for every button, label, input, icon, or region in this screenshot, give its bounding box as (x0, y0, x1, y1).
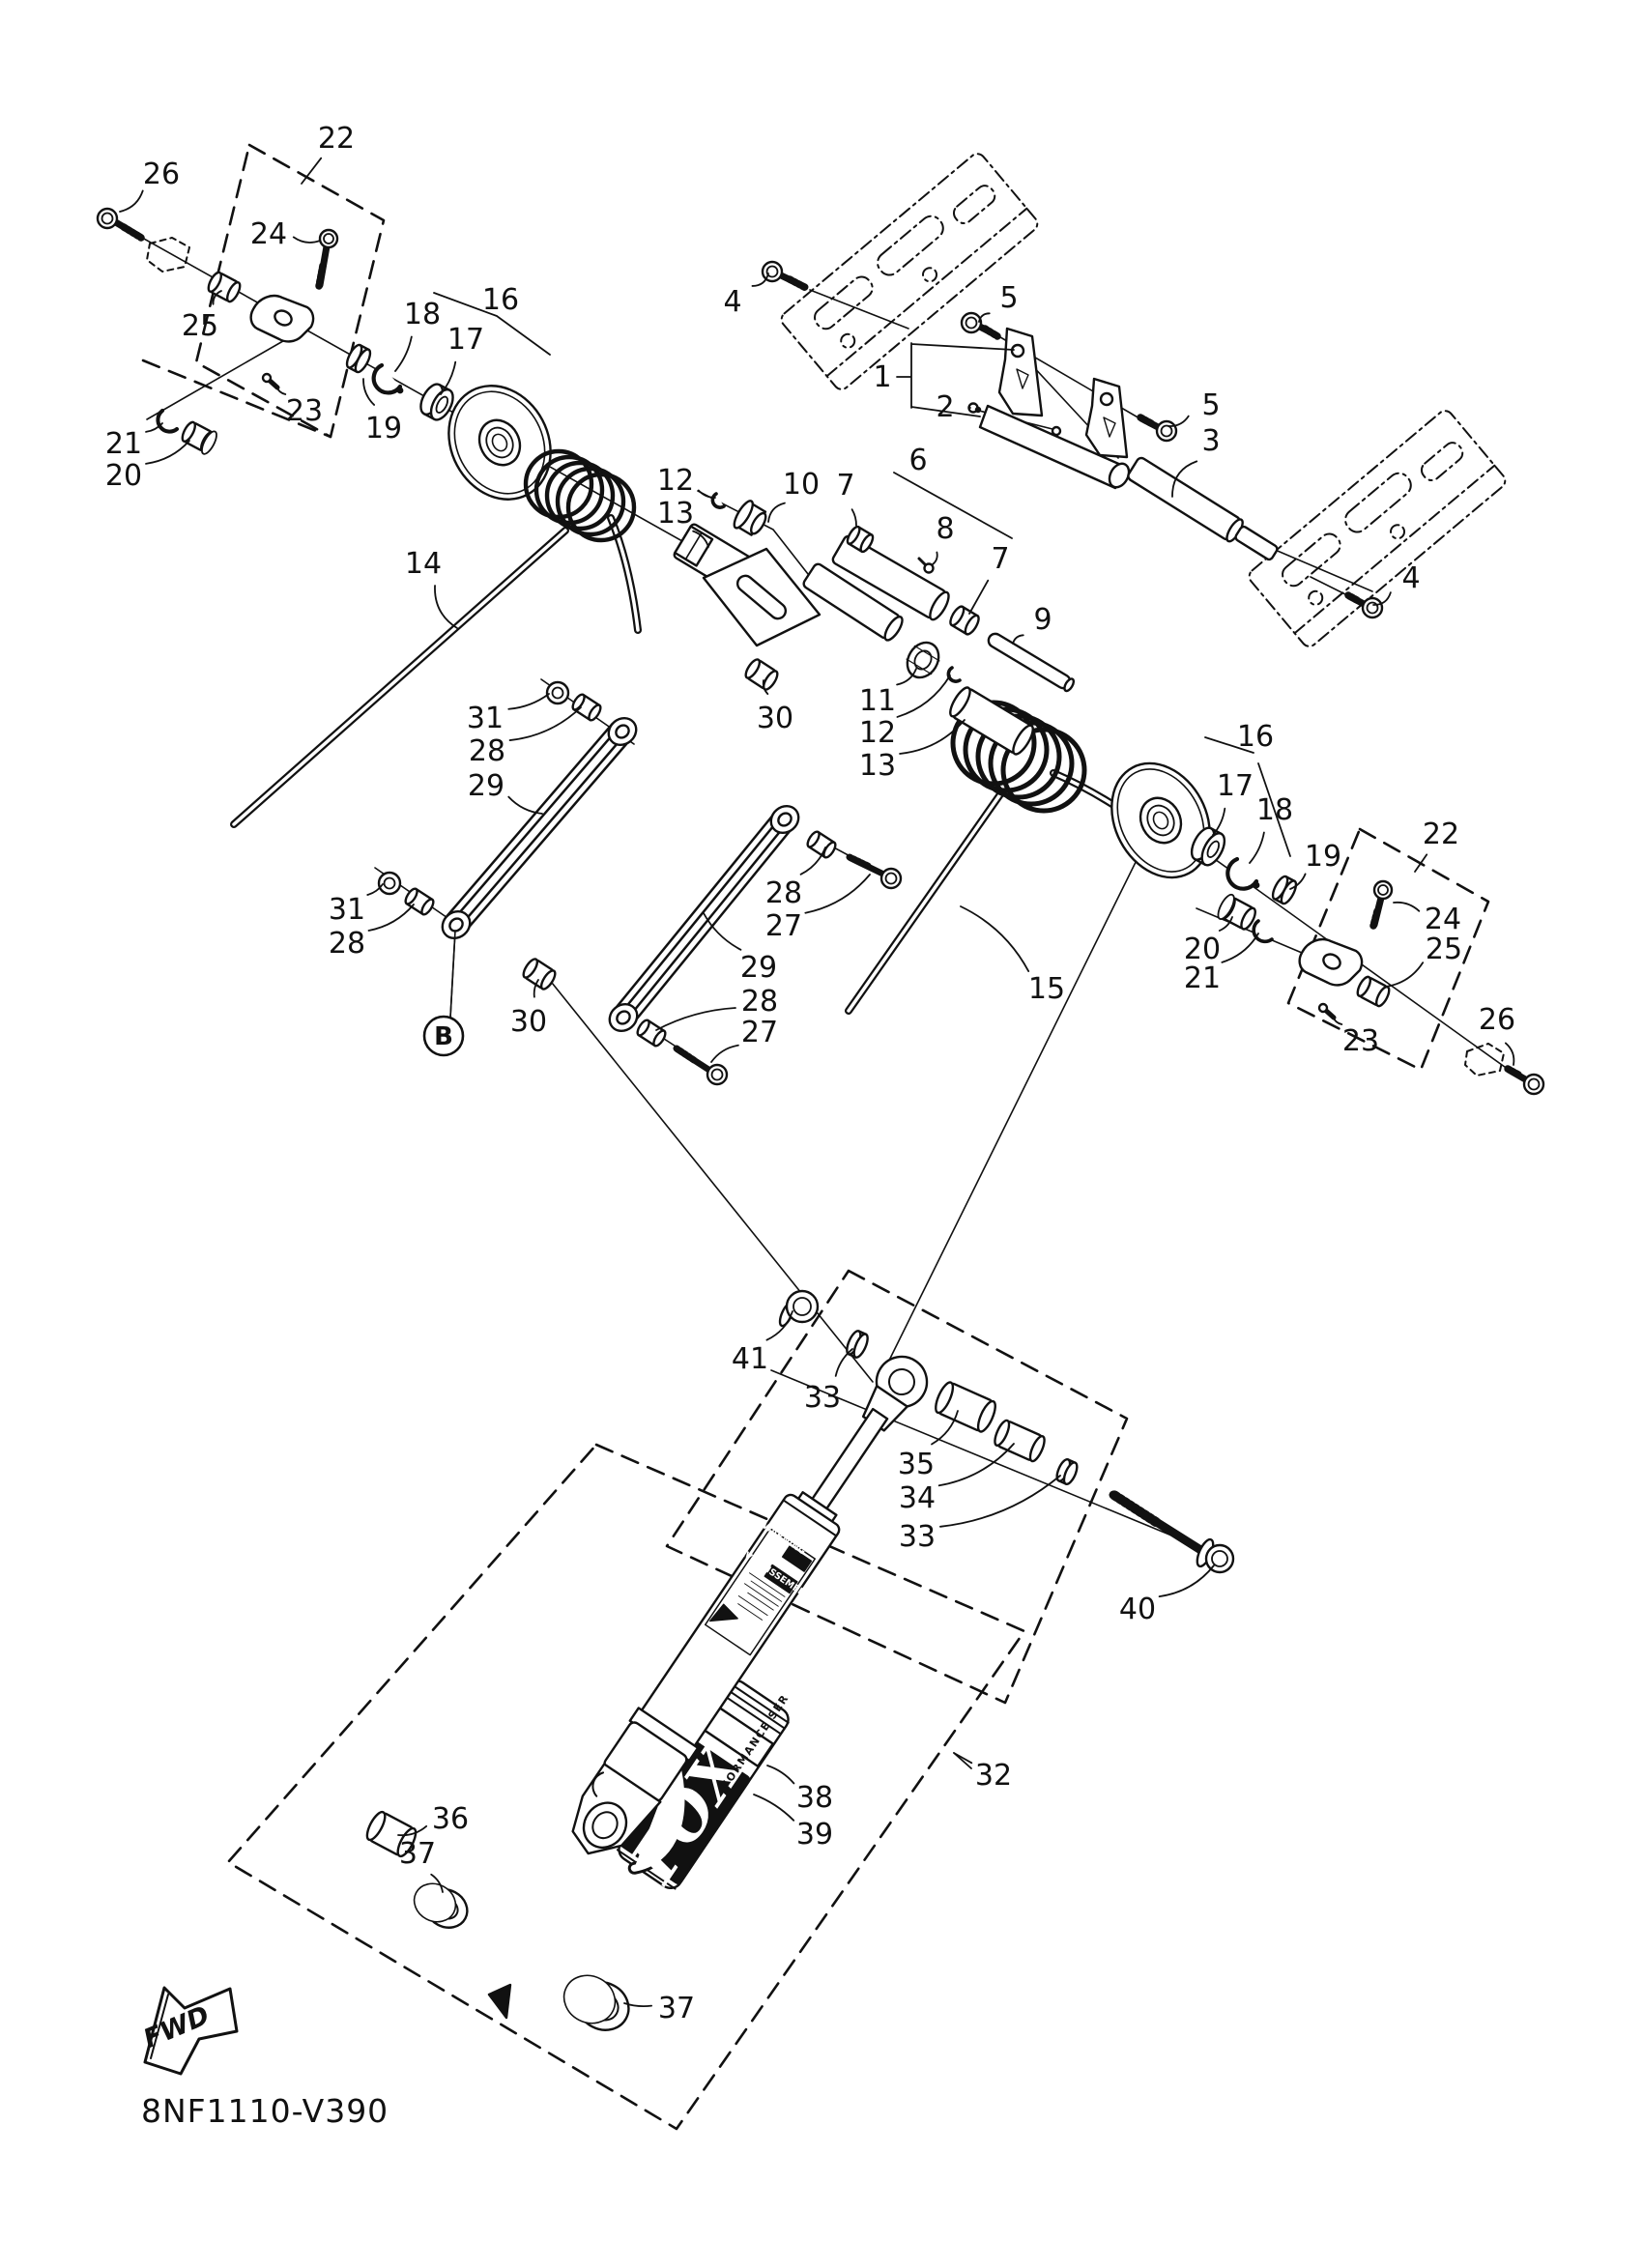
leader-line (1222, 933, 1258, 962)
callout-label-7: 7 (991, 542, 1009, 576)
washer-33a (844, 1329, 870, 1359)
snap-clip-12b (948, 668, 960, 681)
callout-label-30: 30 (757, 702, 793, 735)
nut-31a (547, 682, 568, 703)
callout-label-23: 23 (286, 394, 323, 428)
beam-hole (1052, 427, 1060, 435)
washer-33b (1054, 1457, 1080, 1485)
callout-label-25: 25 (1426, 933, 1462, 966)
screw-23b (1319, 1004, 1334, 1018)
bolt-5a (962, 313, 997, 336)
callout-label-16: 16 (482, 283, 519, 317)
callout-label-27: 27 (741, 1016, 778, 1049)
leader-line (939, 1444, 1014, 1485)
callout-label-13: 13 (657, 497, 694, 531)
cap-11 (901, 637, 944, 683)
callout-label-32: 32 (975, 1759, 1012, 1793)
leader-line (940, 1476, 1060, 1527)
rail-front (778, 151, 1040, 392)
callout-label-15: 15 (1028, 972, 1065, 1006)
snap-ring-18b (1227, 859, 1256, 889)
callout-label-36: 36 (432, 1802, 469, 1836)
spacer-28a (570, 693, 602, 722)
callout-label-16: 16 (1237, 720, 1274, 754)
callout-label-14: 14 (405, 547, 442, 581)
exploded-view-diagram: FOX FORMANCE SER WARNING AVERTISSEMENT B… (0, 0, 1643, 2268)
leader-line (508, 694, 549, 709)
callout-label-13: 13 (859, 749, 896, 783)
callout-label-35: 35 (898, 1448, 935, 1481)
bolt-24a (319, 230, 337, 286)
mount-bracket-assembly (980, 329, 1133, 491)
callout-label-5: 5 (999, 281, 1018, 315)
callout-label-28: 28 (765, 876, 802, 910)
leader-line (1250, 833, 1264, 863)
leader-line (1386, 962, 1423, 987)
callout-label-19: 19 (1305, 840, 1341, 874)
callout-label-31: 31 (329, 893, 365, 927)
callout-label-17: 17 (1217, 769, 1254, 803)
callout-label-24: 24 (250, 217, 287, 251)
collar-20b (1215, 892, 1258, 933)
svg-text:B: B (434, 1022, 453, 1051)
callout-label-19: 19 (365, 412, 402, 445)
leader-line (754, 1794, 793, 1821)
callout-label-8: 8 (936, 512, 954, 546)
leader-line (1394, 903, 1419, 911)
part-code: 8NF1110-V390 (141, 2092, 389, 2130)
callout-label-5: 5 (1201, 388, 1220, 422)
snap-ring-21b (1254, 921, 1272, 941)
spacer-28d (635, 1019, 667, 1048)
callout-label-23: 23 (1342, 1024, 1379, 1058)
snap-ring-21a (158, 411, 177, 432)
callout-label-20: 20 (105, 459, 142, 493)
leader-line (1333, 1017, 1341, 1024)
callout-label-26: 26 (1479, 1003, 1515, 1037)
rod-9 (986, 631, 1075, 692)
callout-label-31: 31 (467, 702, 504, 735)
callout-label-41: 41 (732, 1342, 768, 1376)
callout-label-24: 24 (1425, 903, 1461, 936)
callout-label-3: 3 (1201, 424, 1220, 458)
callout-label-37: 37 (658, 1992, 695, 2025)
shock-absorber (363, 1341, 995, 2039)
bushing-30a (743, 657, 780, 691)
snap-clip-12a (712, 494, 724, 507)
bolt-4b (1348, 595, 1382, 617)
callout-label-28: 28 (741, 985, 778, 1019)
callout-label-40: 40 (1119, 1593, 1156, 1626)
leader-line (294, 237, 320, 243)
nut-31b (379, 873, 400, 894)
callout-label-18: 18 (404, 298, 441, 331)
callout-label-34: 34 (899, 1481, 936, 1515)
parts-diagram-page: FOX FORMANCE SER WARNING AVERTISSEMENT B… (0, 0, 1643, 2268)
bushing-30b (521, 957, 558, 990)
screw-23a (263, 374, 277, 388)
callout-label-29: 29 (468, 769, 504, 803)
callout-label-26: 26 (143, 158, 180, 191)
callout-label-22: 22 (1423, 818, 1459, 851)
leader-line (368, 904, 414, 931)
callout-label-25: 25 (182, 309, 218, 343)
ref-marker-b: B (424, 1017, 463, 1055)
callout-label-11: 11 (859, 684, 896, 718)
collar-7b (948, 605, 981, 637)
leader-line (1415, 854, 1427, 872)
leader-line (120, 190, 143, 212)
collar-20a (179, 418, 219, 456)
leader-line (656, 1008, 735, 1030)
callout-label-33: 33 (899, 1520, 936, 1554)
callout-label-27: 27 (765, 909, 802, 943)
wheel-right (1092, 746, 1228, 895)
bolt-27a (850, 857, 901, 888)
callout-label-4: 4 (1401, 561, 1420, 595)
ref-marker-leader (450, 931, 455, 1018)
leader-line (767, 1766, 793, 1783)
bolt-4a (763, 262, 806, 288)
callout-label-38: 38 (796, 1781, 833, 1815)
bolt-26a (98, 209, 141, 238)
fwd-marker-triangle (489, 1985, 510, 2018)
callout-label-17: 17 (447, 323, 484, 357)
collar-35 (933, 1380, 999, 1433)
seal-19a (344, 343, 373, 374)
callout-label-7: 7 (836, 469, 854, 502)
callout-layer: 1234455677891011121312131415161718191617… (105, 122, 1515, 2025)
bolt-5b (1140, 417, 1176, 441)
bolt-24b (1373, 881, 1392, 926)
shaft-rod-3 (1127, 456, 1279, 560)
leader-line (852, 509, 856, 526)
leader-line (961, 906, 1028, 971)
leader-line (1160, 1565, 1214, 1596)
callout-label-21: 21 (105, 427, 142, 461)
bushing-25b (1355, 975, 1392, 1008)
link-pair-front (437, 712, 642, 943)
callout-label-2: 2 (936, 390, 954, 424)
callout-label-9: 9 (1033, 603, 1052, 637)
leader-line (768, 503, 785, 522)
leader-line (933, 553, 937, 564)
callout-label-18: 18 (1256, 793, 1293, 827)
bracket-plate-a (999, 329, 1042, 416)
callout-label-37: 37 (399, 1837, 436, 1871)
bolt-26b (1508, 1069, 1543, 1094)
callout-label-39: 39 (796, 1818, 833, 1852)
left-pivot-parts (158, 271, 313, 456)
callout-label-30: 30 (510, 1005, 547, 1039)
callout-label-10: 10 (783, 468, 820, 502)
leader-line (510, 707, 581, 740)
callout-label-1: 1 (873, 360, 891, 394)
roller-13b (947, 685, 1037, 757)
grease-nipple-8 (919, 559, 934, 573)
leader-line (276, 387, 285, 394)
callout-label-12: 12 (657, 464, 694, 498)
leader-line (435, 586, 457, 628)
fwd-arrow: FWD (139, 1988, 237, 2074)
leader-line (1506, 1043, 1514, 1065)
leader-line (711, 1046, 738, 1062)
callout-label-28: 28 (329, 927, 365, 961)
bracket-plate-b (1086, 379, 1127, 457)
callout-label-4: 4 (723, 285, 741, 319)
leader-line (395, 336, 412, 371)
callout-label-28: 28 (469, 734, 505, 768)
leader-line (146, 441, 189, 464)
roller-10 (731, 499, 770, 539)
callout-label-33: 33 (804, 1381, 841, 1415)
leader-line (1013, 635, 1023, 644)
callout-label-22: 22 (318, 122, 355, 156)
nut-41 (777, 1291, 818, 1328)
callout-label-12: 12 (859, 716, 896, 750)
leader-line (805, 875, 870, 913)
leader-line (969, 581, 988, 614)
callout-label-21: 21 (1184, 962, 1221, 995)
bolt-40 (1112, 1494, 1233, 1572)
callout-label-6: 6 (908, 444, 927, 477)
callout-label-29: 29 (740, 951, 777, 985)
